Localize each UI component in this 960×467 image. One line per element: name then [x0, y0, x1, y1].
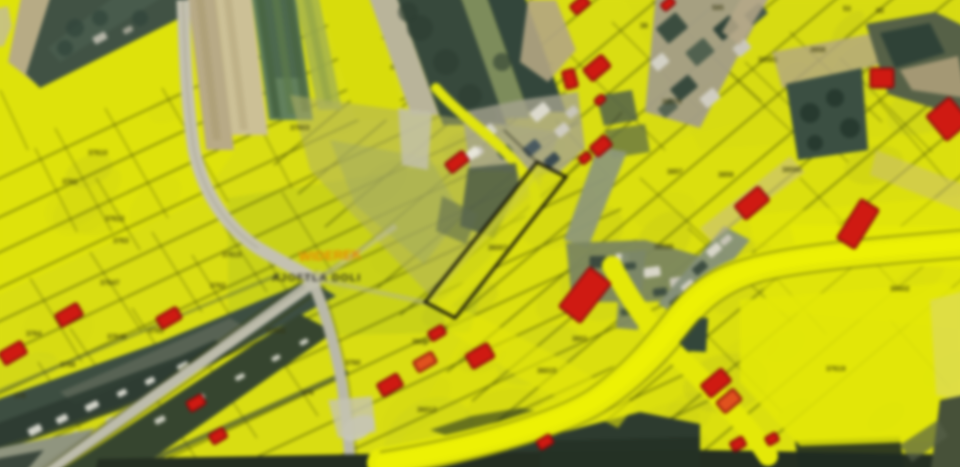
svg-text:3600: 3600 — [412, 339, 428, 346]
svg-text:53: 53 — [843, 6, 851, 13]
svg-text:AJOFTLA DOLI: AJOFTLA DOLI — [272, 272, 361, 284]
svg-text:376: 376 — [302, 390, 314, 397]
svg-text:38596: 38596 — [654, 244, 674, 251]
svg-text:376: 376 — [14, 393, 26, 400]
svg-text:3766: 3766 — [60, 362, 76, 369]
svg-text:37652: 37652 — [266, 328, 286, 335]
svg-text:36012: 36012 — [417, 407, 437, 414]
svg-text:80: 80 — [876, 8, 884, 15]
svg-text:37612: 37612 — [105, 216, 125, 223]
svg-text:3763: 3763 — [113, 238, 129, 245]
svg-text:36007: 36007 — [488, 245, 508, 252]
svg-text:36015: 36015 — [537, 368, 557, 375]
svg-text:585: 585 — [712, 5, 724, 12]
svg-text:3859: 3859 — [718, 172, 734, 179]
svg-text:3761: 3761 — [62, 179, 78, 186]
svg-text:37647: 37647 — [100, 280, 120, 287]
svg-text:38: 38 — [640, 23, 648, 30]
svg-text:38602: 38602 — [890, 286, 910, 293]
svg-text:3762: 3762 — [210, 283, 226, 290]
svg-text:37648: 37648 — [107, 334, 127, 341]
svg-text:37619: 37619 — [826, 366, 846, 373]
svg-text:37615: 37615 — [222, 252, 242, 259]
svg-text:3601: 3601 — [572, 336, 588, 343]
svg-text:3857: 3857 — [667, 169, 683, 176]
svg-text:3765: 3765 — [148, 328, 164, 335]
svg-text:38581: 38581 — [758, 57, 778, 64]
svg-text:37610: 37610 — [88, 150, 108, 157]
svg-text:WIDEREK: WIDEREK — [299, 247, 363, 264]
svg-text:38576: 38576 — [662, 99, 682, 106]
svg-text:38590: 38590 — [782, 167, 802, 174]
svg-text:37603: 37603 — [290, 125, 310, 132]
svg-text:3858: 3858 — [810, 47, 826, 54]
svg-text:3760: 3760 — [345, 360, 361, 367]
svg-text:3764: 3764 — [26, 331, 42, 338]
